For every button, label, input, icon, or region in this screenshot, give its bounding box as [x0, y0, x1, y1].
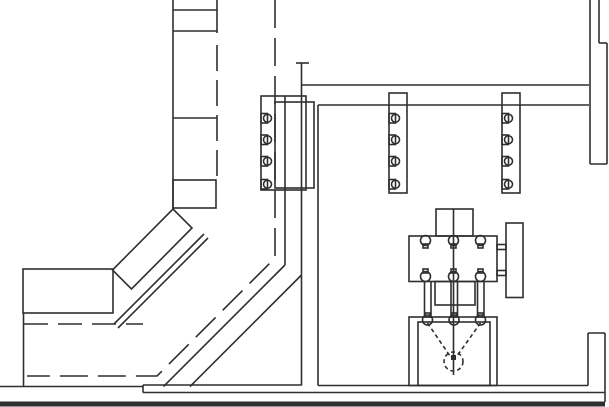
machine-mid-block: [435, 282, 475, 306]
conveyor-centerline-dashed: [27, 0, 275, 376]
floor-band: [0, 402, 605, 407]
funnel-dashed-left: [428, 323, 451, 356]
conveyor-diagonal-panel: [113, 209, 193, 289]
cad-layout-drawing: [0, 0, 609, 407]
cad-drawing-canvas: [0, 0, 609, 407]
chute-side-diagonal-b: [190, 275, 302, 387]
machine-connector-lower: [497, 271, 506, 276]
wall-plate-inner: [275, 102, 314, 188]
chute-side-diagonal-a: [164, 265, 286, 387]
machine-flange: [506, 223, 523, 298]
machine-top-block: [436, 209, 473, 236]
conveyor-segment-box: [173, 180, 216, 208]
conveyor-inner-rail-a: [114, 234, 204, 324]
conveyor-horizontal-box: [23, 269, 113, 313]
machine-connector-upper: [497, 245, 506, 250]
funnel-dashed-right: [457, 323, 481, 356]
